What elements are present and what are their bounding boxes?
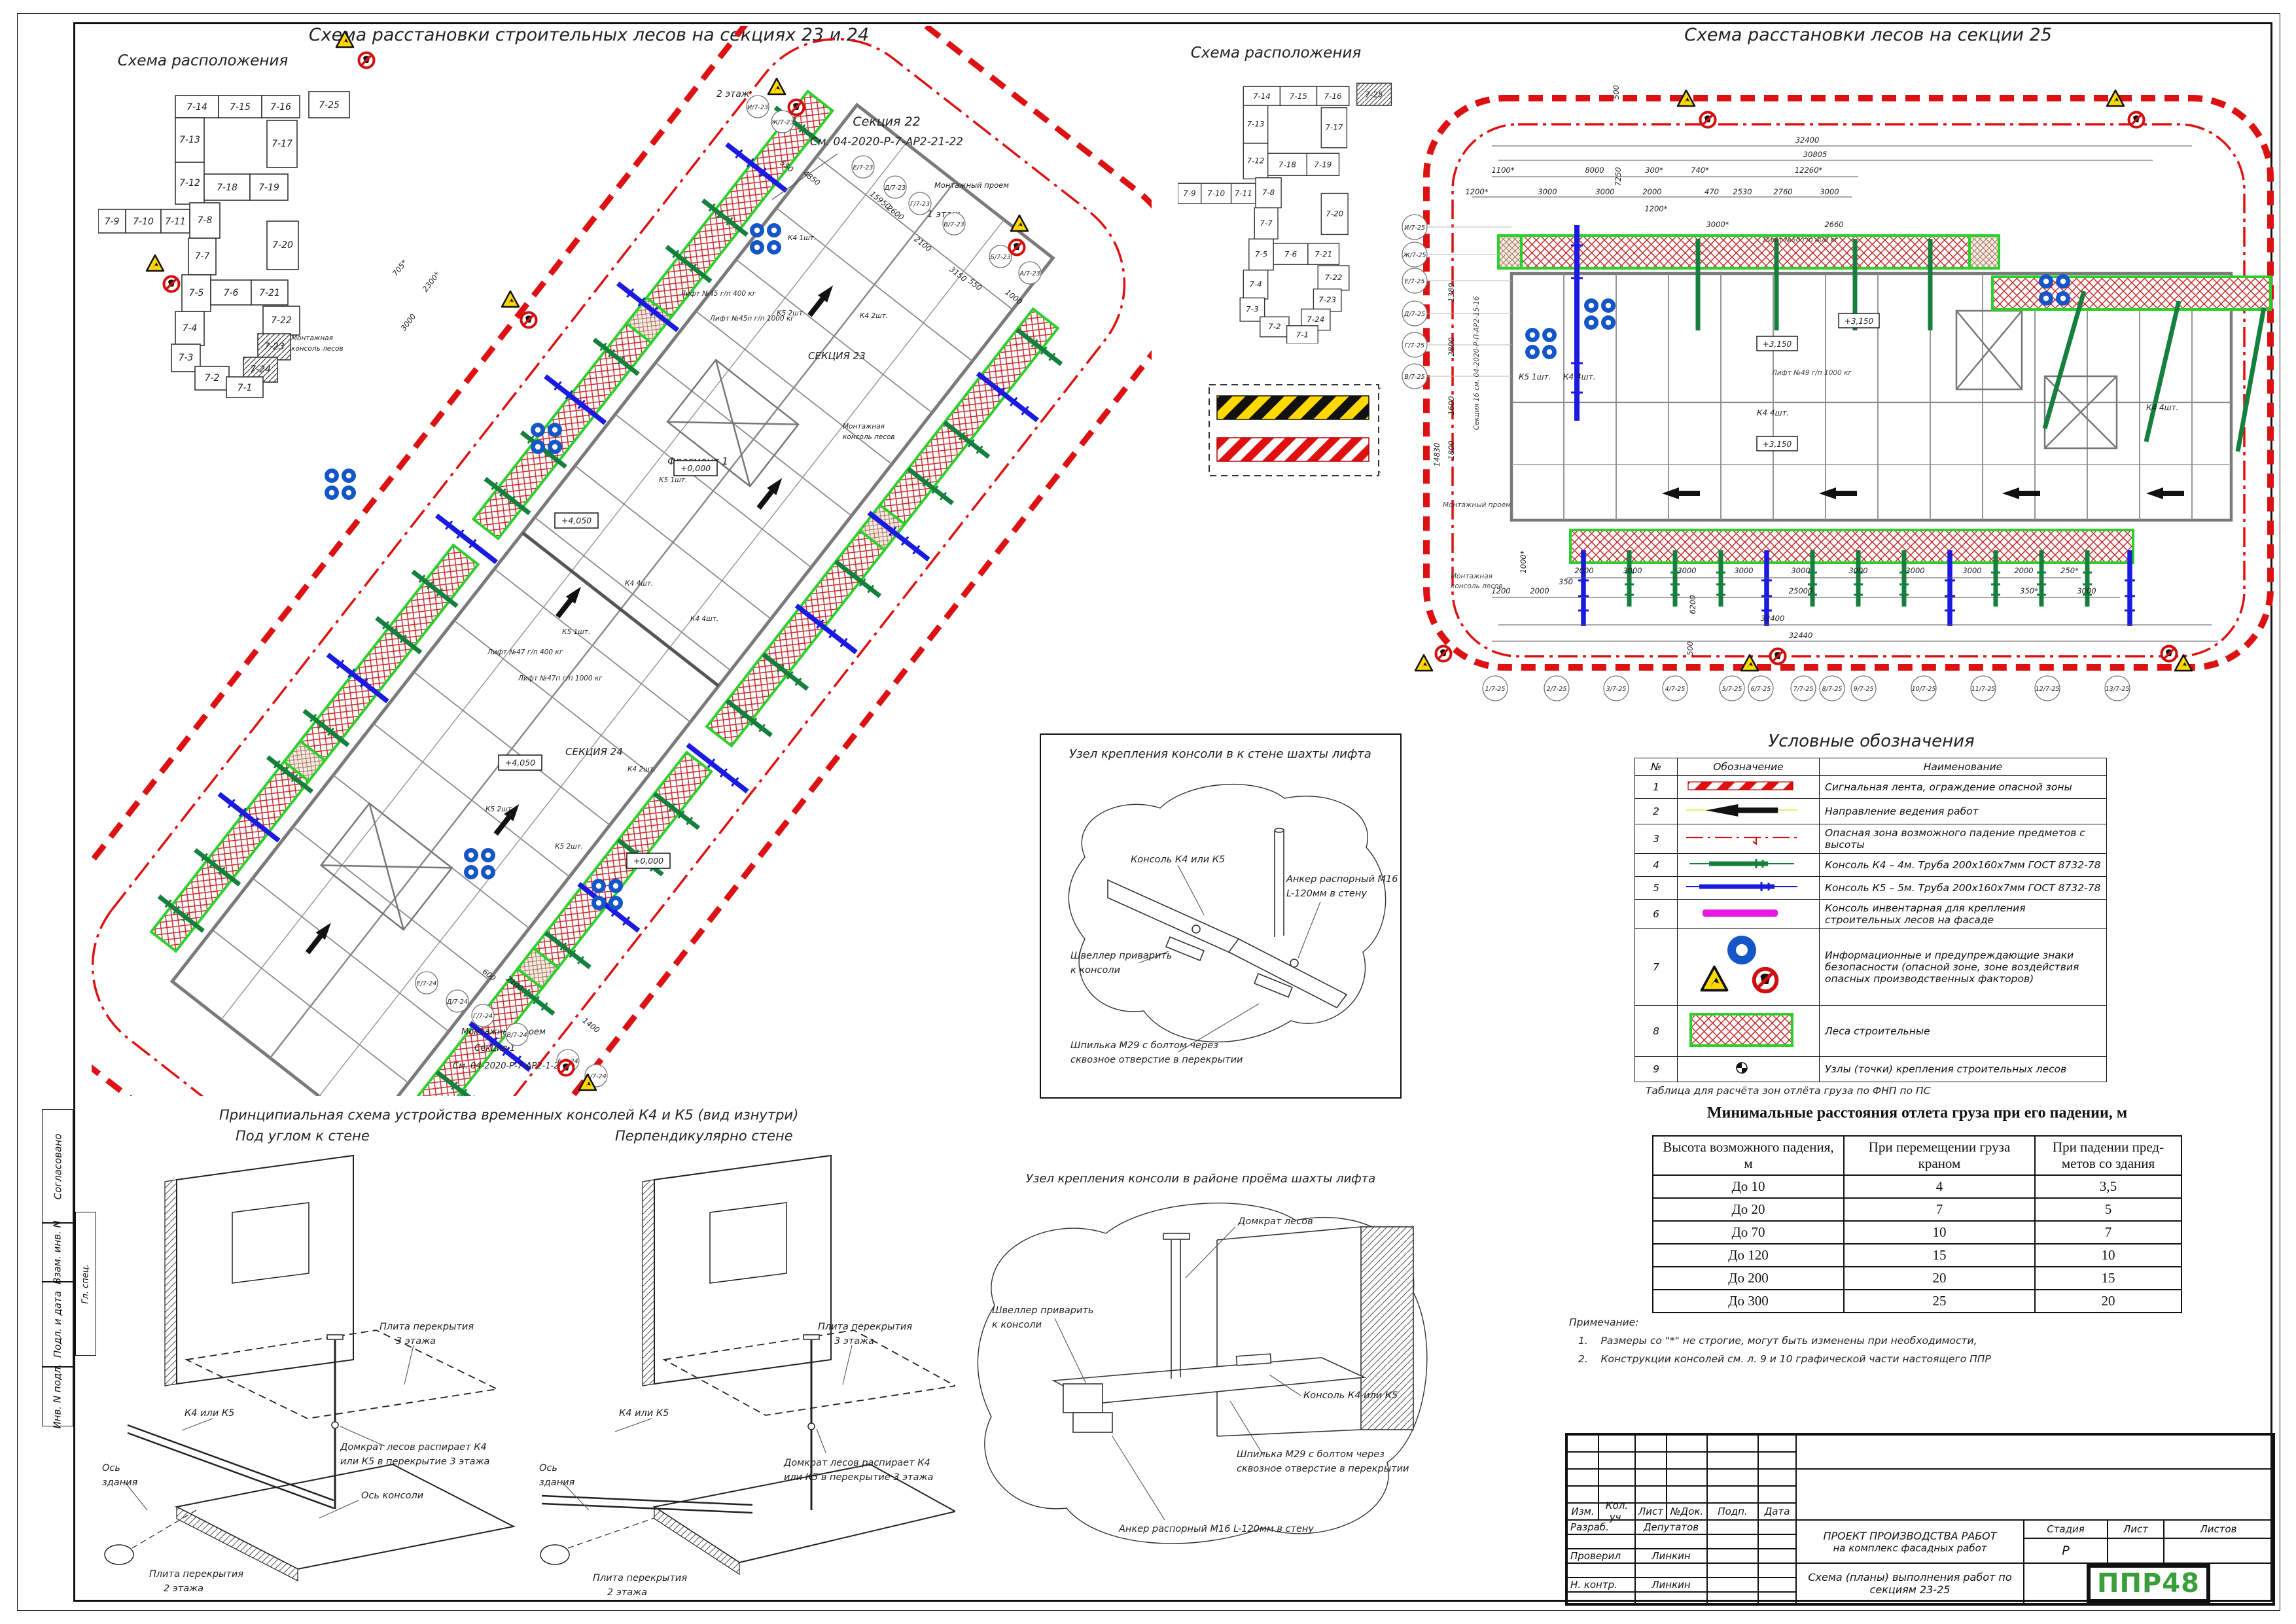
symbol-console-k5 xyxy=(1683,879,1801,894)
symbol-signal-tape xyxy=(1683,779,1801,793)
legend-row: 9 Узлы (точки) крепления строительных ле… xyxy=(1635,1057,2107,1082)
legend-row: 3 Опасная зона возможного падение предме… xyxy=(1635,824,2107,854)
svg-text:2300*: 2300* xyxy=(421,270,442,293)
svg-text:Лифт №47п г/п 1000 кг: Лифт №47п г/п 1000 кг xyxy=(518,675,603,682)
note-2: 2. Конструкции консолей см. л. 9 и 10 гр… xyxy=(1578,1353,1991,1365)
margin-cell-inv: Инв. N подл. xyxy=(42,1366,73,1426)
red-white-tape xyxy=(1217,438,1369,461)
lift50-label: Лифт №50 г/п 400 кг xyxy=(1762,236,1839,244)
legend-title: Условные обозначения xyxy=(1669,732,2074,751)
detail-lift-opening: Узел крепления консоли в районе проёма ш… xyxy=(955,1161,1446,1561)
detail-lift-wall: Узел крепления консоли в к стене шахты л… xyxy=(1039,733,1402,1099)
svg-text:здания: здания xyxy=(539,1477,575,1488)
tb-role: Разраб. xyxy=(1567,1520,1635,1534)
black-yellow-tape xyxy=(1217,396,1369,419)
svg-text:К4 2шт.: К4 2шт. xyxy=(627,766,656,773)
svg-text:или К5 в перекрытие 3 этажа: или К5 в перекрытие 3 этажа xyxy=(340,1456,489,1467)
svg-text:К4 2шт.: К4 2шт. xyxy=(860,312,888,320)
svg-text:3000: 3000 xyxy=(1623,566,1642,575)
svg-text:2 этажа: 2 этажа xyxy=(607,1587,647,1598)
svg-text:К5 2шт.: К5 2шт. xyxy=(555,843,583,851)
margin-cell-podl: Подл. и дата xyxy=(42,1281,73,1368)
svg-text:3000: 3000 xyxy=(1848,566,1867,575)
mount-console-label: Монтажная xyxy=(1451,573,1492,580)
svg-text:350: 350 xyxy=(1559,577,1573,586)
section23-label: СЕКЦИЯ 23 xyxy=(808,350,866,362)
svg-text:+3,150: +3,150 xyxy=(1763,340,1792,349)
svg-text:К5 2шт.: К5 2шт. xyxy=(486,805,514,813)
tb-col-podp: Подп. xyxy=(1707,1503,1758,1520)
svg-text:Г/7-24: Г/7-24 xyxy=(473,1013,493,1020)
grid-bubbles-bottom: 1/7-25 2/7-25 3/7-25 4/7-25 5/7-25 6/7-2… xyxy=(1483,676,2130,701)
svg-text:30805: 30805 xyxy=(1803,150,1828,159)
drop-row: До 1043,5 xyxy=(1653,1175,2181,1198)
loc-section-label: 7-23 xyxy=(1318,295,1336,304)
symbol-danger-zone xyxy=(1683,830,1801,845)
drop-table-note: Таблица для расчёта зон отлёта груза по … xyxy=(1646,1085,1931,1097)
svg-text:Монтажная: Монтажная xyxy=(291,334,333,342)
svg-text:Плита перекрытия: Плита перекрытия xyxy=(380,1322,474,1332)
svg-text:Плита перекрытия: Плита перекрытия xyxy=(818,1322,912,1332)
callout-sec22-doc: См. 04-2020-Р-7-АР2-21-22 xyxy=(810,135,963,149)
svg-text:25000: 25000 xyxy=(1789,586,1813,595)
svg-text:12260*: 12260* xyxy=(1795,166,1823,175)
legend-row: 4 Консоль К4 – 4м. Труба 200х160х7мм ГОС… xyxy=(1635,854,2107,877)
loc-section-label: 7-10 xyxy=(1207,189,1225,198)
legend-col-name: Наименование xyxy=(1820,758,2107,776)
svg-text:Б/7-23: Б/7-23 xyxy=(990,254,1010,261)
drop-row: До 3002520 xyxy=(1653,1290,2181,1313)
loc-section-label: 7-17 xyxy=(1325,123,1343,132)
svg-text:3000: 3000 xyxy=(1962,566,1981,575)
drawing-sheet: Согласовано Взам. инв. N Подл. и дата Ин… xyxy=(0,0,2296,1624)
svg-text:2000: 2000 xyxy=(1530,586,1549,595)
tb-col-data: Дата xyxy=(1758,1503,1796,1520)
principal-sub-right: Перпендикулярно стене xyxy=(615,1128,793,1144)
principal-under-angle: Плита перекрытия3 этажа К4 или К5 Осьзда… xyxy=(79,1144,523,1602)
svg-text:здания: здания xyxy=(102,1477,138,1488)
drop-row: До 2075 xyxy=(1653,1198,2181,1221)
svg-text:Г/7-25: Г/7-25 xyxy=(1405,342,1424,349)
svg-text:10/7-25: 10/7-25 xyxy=(1912,686,1936,693)
svg-text:Консоль К4 или К5: Консоль К4 или К5 xyxy=(1131,855,1225,865)
note-1: 1. Размеры со "*" не строгие, могут быть… xyxy=(1578,1335,1977,1347)
loc-section-label: 7-7 xyxy=(1260,219,1273,228)
loc-section-label: 7-9 xyxy=(1183,189,1195,198)
svg-text:1380: 1380 xyxy=(1447,283,1456,302)
svg-text:3000: 3000 xyxy=(1538,187,1557,196)
svg-text:или К5 в перекрытие 3 этажа: или К5 в перекрытие 3 этажа xyxy=(784,1472,933,1483)
drop-row: До 2002015 xyxy=(1653,1267,2181,1290)
svg-text:2 этажа: 2 этажа xyxy=(164,1583,203,1594)
drop-table-title: Минимальные расстояния отлета груза при … xyxy=(1652,1104,2182,1122)
svg-text:12/7-25: 12/7-25 xyxy=(2036,686,2060,693)
svg-text:3000: 3000 xyxy=(1820,187,1839,196)
principal-title: Принципиальная схема устройства временны… xyxy=(219,1107,798,1123)
svg-text:3000*: 3000* xyxy=(1706,220,1729,229)
tb-doc2: секциям 23-25 xyxy=(1870,1583,1951,1596)
svg-text:470: 470 xyxy=(1704,187,1719,196)
tb-col-ndok: №Док. xyxy=(1667,1503,1707,1520)
svg-text:Ось: Ось xyxy=(539,1463,557,1474)
loc-section-label: 7-24 xyxy=(1307,315,1324,324)
margin-label: Согласовано xyxy=(52,1133,63,1199)
tb-name: Депутатов xyxy=(1635,1520,1707,1534)
svg-text:3000: 3000 xyxy=(2077,586,2096,595)
svg-text:1000*: 1000* xyxy=(1519,550,1528,573)
svg-text:В/7-25: В/7-25 xyxy=(1404,374,1424,381)
dimension-texts-top: 32400 30805 1100* 8000 300* 740* 12260* … xyxy=(1465,85,1843,229)
svg-text:Д/7-24: Д/7-24 xyxy=(446,998,468,1006)
svg-text:1600: 1600 xyxy=(1447,396,1456,415)
svg-text:к консоли: к консоли xyxy=(1070,965,1120,976)
svg-text:3 этажа: 3 этажа xyxy=(396,1336,436,1347)
tb-col-list: Лист xyxy=(1635,1503,1667,1520)
tb-stage-label: Стадия xyxy=(2024,1520,2108,1538)
svg-text:5/7-25: 5/7-25 xyxy=(1722,686,1742,693)
svg-text:К4 1шт.: К4 1шт. xyxy=(788,234,816,242)
svg-text:Д/7-25: Д/7-25 xyxy=(1404,311,1425,318)
drop-header: При перемещении груза краном xyxy=(1844,1136,2035,1175)
opening-label: Монтажный проем xyxy=(1443,501,1511,509)
svg-text:14830: 14830 xyxy=(1432,443,1441,467)
plan-section-25: И/7-25 Ж/7-25 Е/7-25 Д/7-25 Г/7-25 В/7-2… xyxy=(1400,36,2290,716)
loc-section-label: 7-22 xyxy=(1325,273,1343,282)
svg-text:6/7-25: 6/7-25 xyxy=(1751,686,1771,693)
svg-text:250*: 250* xyxy=(2060,566,2079,575)
svg-text:2660: 2660 xyxy=(1824,220,1843,229)
drop-header: Высота возможного падения, м xyxy=(1653,1136,1844,1175)
symbol-direction-arrow xyxy=(1683,802,1801,819)
svg-text:3000: 3000 xyxy=(1595,187,1614,196)
svg-text:Анкер распорный М16: Анкер распорный М16 xyxy=(1286,874,1398,885)
detail2-title: Узел крепления консоли в районе проёма ш… xyxy=(1026,1172,1375,1186)
tb-logo-cell: ППР48 xyxy=(2024,1563,2273,1604)
mount-console-label: консоль лесов xyxy=(1451,582,1503,590)
svg-text:+3,150: +3,150 xyxy=(1763,440,1792,449)
loc-section-label: 7-13 xyxy=(1247,120,1265,129)
tb-doc1: Схема (планы) выполнения работ по xyxy=(1808,1571,2011,1583)
svg-text:сквозное отверстие в перекрыти: сквозное отверстие в перекрытии xyxy=(1070,1055,1243,1065)
svg-text:+3,150: +3,150 xyxy=(1845,317,1874,326)
margin-cell-vzam: Взам. инв. N xyxy=(42,1222,73,1282)
svg-text:Плита перекрытия: Плита перекрытия xyxy=(593,1573,687,1583)
svg-text:И/7-23: И/7-23 xyxy=(747,104,768,111)
svg-text:Швеллер приварить: Швеллер приварить xyxy=(1070,951,1172,961)
svg-text:И/7-25: И/7-25 xyxy=(1404,224,1425,232)
svg-text:8000: 8000 xyxy=(1585,166,1604,175)
symbol-fixing-node xyxy=(1683,1059,1801,1076)
callout-sec22: Секция 22 xyxy=(853,115,920,129)
detail1-title: Узел крепления консоли в к стене шахты л… xyxy=(1069,747,1371,761)
svg-text:+0,000: +0,000 xyxy=(633,856,663,866)
note-num: 1. xyxy=(1578,1335,1588,1347)
tb-sheet-label: Лист xyxy=(2108,1520,2164,1538)
loc-section-label: 7-1 xyxy=(1296,330,1309,340)
legend-row: 7 Информационные и предупреждающие знаки… xyxy=(1635,929,2107,1006)
svg-text:Г/7-23: Г/7-23 xyxy=(910,201,930,208)
svg-text:1200*: 1200* xyxy=(1644,204,1667,213)
svg-text:2760: 2760 xyxy=(1773,187,1792,196)
svg-text:Е/7-23: Е/7-23 xyxy=(853,164,874,171)
svg-text:4/7-25: 4/7-25 xyxy=(1665,686,1686,693)
svg-text:К5 1шт.: К5 1шт. xyxy=(562,628,590,636)
svg-text:консоль лесов: консоль лесов xyxy=(291,345,344,353)
tb-stage-value: Р xyxy=(2024,1538,2108,1563)
tb-sheets-label: Листов xyxy=(2164,1520,2273,1538)
opening-label: Монтажный проем xyxy=(934,181,1009,190)
svg-text:32400: 32400 xyxy=(1795,135,1820,145)
plan-sections-23-24: СЕКЦИЯ 23 СЕКЦИЯ 24 Секция 22 См. 04-202… xyxy=(92,26,1152,1096)
svg-text:Шпилька М29 с болтом через: Шпилька М29 с болтом через xyxy=(1237,1449,1385,1460)
loc-section-label: 7-12 xyxy=(1247,156,1265,166)
svg-text:Плита перекрытия: Плита перекрытия xyxy=(149,1569,243,1580)
svg-text:2000: 2000 xyxy=(1574,566,1593,575)
svg-text:сквозное отверстие в перекрыти: сквозное отверстие в перекрытии xyxy=(1237,1464,1409,1474)
loc-section-label: 7-14 xyxy=(1253,92,1271,101)
symbol-safety-signs xyxy=(1683,932,1801,1000)
svg-text:Лифт №45 г/п 400 кг: Лифт №45 г/п 400 кг xyxy=(680,290,756,298)
svg-text:Е/7-25: Е/7-25 xyxy=(1405,278,1425,285)
svg-text:Ж/7-23: Ж/7-23 xyxy=(771,119,794,126)
tape-callout-detail xyxy=(1207,383,1381,478)
svg-text:Консоль К4 или К5: Консоль К4 или К5 xyxy=(1303,1390,1398,1401)
svg-text:1200*: 1200* xyxy=(1465,187,1488,196)
svg-text:7250: 7250 xyxy=(1614,167,1623,186)
k4-count: К4 4шт. xyxy=(2146,403,2178,412)
tb-role: Н. контр. xyxy=(1567,1578,1635,1592)
svg-text:+0,000: +0,000 xyxy=(680,463,711,473)
svg-text:Д/7-23: Д/7-23 xyxy=(884,185,906,192)
legend-table: № Обозначение Наименование 1 Сигнальная … xyxy=(1634,758,2107,1082)
svg-text:Домкрат лесов распирает К4: Домкрат лесов распирает К4 xyxy=(340,1442,487,1453)
svg-text:Лифт №47 г/п 400 кг: Лифт №47 г/п 400 кг xyxy=(487,648,563,656)
svg-text:500: 500 xyxy=(1686,641,1695,656)
tb-project-cell: ПРОЕКТ ПРОИЗВОДСТВА РАБОТ на комплекс фа… xyxy=(1796,1520,2024,1563)
svg-text:9/7-25: 9/7-25 xyxy=(1854,686,1874,693)
drop-row: До 1201510 xyxy=(1653,1244,2181,1267)
loc-section-label: 7-2 xyxy=(1268,322,1280,331)
margin-label: Взам. инв. N xyxy=(52,1220,63,1284)
svg-text:3/7-25: 3/7-25 xyxy=(1606,686,1627,693)
loc-section-label: 7-3 xyxy=(1246,305,1258,314)
svg-text:Е/7-24: Е/7-24 xyxy=(417,980,437,987)
drop-header: При падении пред-метов со здания xyxy=(2035,1136,2181,1175)
svg-text:К4 4шт.: К4 4шт. xyxy=(690,615,718,623)
loc-section-label: 7-8 xyxy=(1262,188,1275,197)
legend-row: 8 Леса строительные xyxy=(1635,1006,2107,1057)
symbol-inventory-console xyxy=(1683,906,1801,920)
legend-row: 2 Направление ведения работ xyxy=(1635,799,2107,824)
svg-text:2000: 2000 xyxy=(1642,187,1661,196)
svg-text:705*: 705* xyxy=(391,258,409,278)
svg-text:К5 1шт.: К5 1шт. xyxy=(659,476,687,484)
notes-title: Примечание: xyxy=(1569,1316,1638,1328)
svg-text:32440: 32440 xyxy=(1789,631,1813,640)
svg-text:1/7-25: 1/7-25 xyxy=(1485,686,1506,693)
svg-text:1800: 1800 xyxy=(1447,440,1456,459)
svg-text:Ось: Ось xyxy=(102,1463,120,1474)
svg-text:3000: 3000 xyxy=(1734,566,1753,575)
svg-text:В/7-23: В/7-23 xyxy=(944,221,964,228)
svg-text:8/7-25: 8/7-25 xyxy=(1822,686,1843,693)
legend-row: 6 Консоль инвентарная для крепления стро… xyxy=(1635,900,2107,929)
svg-text:Ж/7-25: Ж/7-25 xyxy=(1403,252,1426,259)
margin-cell-soglasovano: Согласовано xyxy=(42,1109,73,1224)
svg-text:А/7-23: А/7-23 xyxy=(1019,270,1040,277)
legend-row: 1 Сигнальная лента, ограждение опасной з… xyxy=(1635,776,2107,799)
symbol-scaffolding xyxy=(1683,1010,1801,1050)
legend-row: 5 Консоль К5 – 5м. Труба 200х160х7мм ГОС… xyxy=(1635,877,2107,900)
loc-right-title: Схема расположения xyxy=(1171,44,1381,62)
tb-project2: на комплекс фасадных работ xyxy=(1833,1542,1987,1554)
principal-sub-left: Под углом к стене xyxy=(236,1128,370,1144)
svg-text:2800: 2800 xyxy=(1447,337,1456,356)
loc-section-label: 7-11 xyxy=(1235,189,1252,198)
svg-text:Ось консоли: Ось консоли xyxy=(361,1491,423,1501)
lift49-label: Лифт №49 г/п 1000 кг xyxy=(1771,369,1852,377)
callout-sec1-doc: См. 04-2020-Р-7-АР2-1-2 xyxy=(453,1061,559,1071)
tb-project1: ПРОЕКТ ПРОИЗВОДСТВА РАБОТ xyxy=(1823,1530,1996,1542)
loc-section-label: 7-20 xyxy=(1326,209,1343,218)
svg-text:Анкер распорный М16 L-120мм в: Анкер распорный М16 L-120мм в стену xyxy=(1118,1524,1314,1534)
symbol-console-k4 xyxy=(1683,856,1801,871)
loc-section-label: 7-21 xyxy=(1315,249,1332,258)
tb-name: Линкин xyxy=(1635,1549,1707,1563)
svg-text:2530: 2530 xyxy=(1733,187,1752,196)
svg-text:1100*: 1100* xyxy=(1491,166,1514,175)
tb-doc-cell: Схема (планы) выполнения работ по секция… xyxy=(1796,1563,2024,1604)
k4-count: К4 4шт. xyxy=(1563,372,1595,381)
svg-text:Лифт №45п г/п 1000 кг: Лифт №45п г/п 1000 кг xyxy=(709,315,794,323)
loc-section-label: 7-6 xyxy=(1284,249,1298,258)
loc-section-label: 7-16 xyxy=(1324,92,1342,101)
svg-text:Домкрат лесов: Домкрат лесов xyxy=(1237,1216,1313,1227)
margin-label: Подл. и дата xyxy=(52,1291,63,1358)
svg-text:3000: 3000 xyxy=(1905,566,1924,575)
svg-text:Швеллер приварить: Швеллер приварить xyxy=(992,1305,1093,1316)
svg-text:+4,050: +4,050 xyxy=(505,758,535,768)
tb-col-izm: Изм. xyxy=(1567,1503,1598,1520)
svg-text:консоль лесов: консоль лесов xyxy=(843,433,895,441)
svg-text:Домкрат лесов распирает К4: Домкрат лесов распирает К4 xyxy=(783,1458,930,1468)
title-block: Изм. Кол. уч. Лист №Док. Подп. Дата Разр… xyxy=(1565,1433,2275,1606)
svg-text:11/7-25: 11/7-25 xyxy=(1971,686,1996,693)
grid-bubbles-left: И/7-25 Ж/7-25 Е/7-25 Д/7-25 Г/7-25 В/7-2… xyxy=(1402,215,1511,389)
tb-col-koluch: Кол. уч. xyxy=(1598,1503,1635,1520)
tb-name: Линкин xyxy=(1635,1578,1707,1592)
loc-section-label: 7-4 xyxy=(1249,279,1262,289)
legend-col-symbol: Обозначение xyxy=(1678,758,1820,776)
section16-ref: Секция 16 см. 04-2020-Р-П-АР2-15-16 xyxy=(1473,296,1481,430)
ppr48-logo: ППР48 xyxy=(2087,1564,2210,1603)
svg-text:300*: 300* xyxy=(1645,166,1663,175)
svg-text:32400: 32400 xyxy=(1761,614,1785,623)
note-text: Размеры со "*" не строгие, могут быть из… xyxy=(1601,1335,1977,1347)
drop-row: До 70107 xyxy=(1653,1221,2181,1244)
wall-and-beam xyxy=(1053,1227,1413,1436)
loc-section-label: 7-19 xyxy=(1314,160,1332,169)
svg-text:+4,050: +4,050 xyxy=(561,516,592,525)
svg-text:3000: 3000 xyxy=(1791,566,1810,575)
svg-text:2/7-25: 2/7-25 xyxy=(1547,686,1567,693)
svg-text:3000: 3000 xyxy=(1677,566,1696,575)
callout-sec1: Секция 1 xyxy=(474,1044,515,1053)
svg-text:L-120мм в стену: L-120мм в стену xyxy=(1286,889,1367,899)
location-scheme-right: 7-14 7-15 7-16 7-25 7-13 7-17 7-12 7-18 … xyxy=(1178,65,1400,344)
drop-table: Высота возможного падения, м При перемещ… xyxy=(1652,1135,2182,1313)
svg-text:К4 или К5: К4 или К5 xyxy=(619,1408,669,1419)
wall-and-slabs xyxy=(643,1156,955,1574)
svg-text:2000: 2000 xyxy=(2014,566,2033,575)
tb-role: Проверил xyxy=(1567,1549,1635,1563)
svg-text:3000: 3000 xyxy=(398,312,417,333)
loc-section-label: 7-5 xyxy=(1255,249,1267,258)
building-walls xyxy=(172,105,1053,1096)
svg-text:3 этажа: 3 этажа xyxy=(834,1336,874,1347)
svg-text:К4 или К5: К4 или К5 xyxy=(185,1408,234,1419)
note-num: 2. xyxy=(1578,1353,1588,1365)
principal-perpendicular: Плита перекрытия3 этажа К4 или К5 Осьзда… xyxy=(523,1144,955,1602)
svg-text:К4 4шт.: К4 4шт. xyxy=(625,580,653,588)
svg-text:740*: 740* xyxy=(1691,166,1709,175)
svg-text:к консоли: к консоли xyxy=(992,1320,1042,1330)
k4-count: К4 4шт. xyxy=(1757,408,1789,417)
section24-label: СЕКЦИЯ 24 xyxy=(565,746,623,758)
svg-text:В/7-24: В/7-24 xyxy=(506,1032,527,1039)
svg-text:13/7-25: 13/7-25 xyxy=(2106,686,2130,693)
svg-text:500: 500 xyxy=(1612,85,1621,99)
svg-text:Монтажная: Монтажная xyxy=(843,423,885,431)
floor2-label: 2 этаж xyxy=(716,89,750,99)
legend-col-num: № xyxy=(1635,758,1678,776)
svg-text:1400: 1400 xyxy=(581,1015,602,1034)
wall-and-slabs xyxy=(165,1156,514,1581)
svg-text:350*: 350* xyxy=(2020,586,2038,595)
note-text: Конструкции консолей см. л. 9 и 10 графи… xyxy=(1601,1353,1991,1365)
margin-label: Инв. N подл. xyxy=(52,1364,63,1428)
k5-count: К5 1шт. xyxy=(1519,372,1551,381)
callout-opening: Монтажный проем xyxy=(461,1027,546,1037)
loc-section-label: 7-25 xyxy=(1366,90,1383,99)
svg-text:Шпилька М29 с болтом через: Шпилька М29 с болтом через xyxy=(1070,1040,1218,1051)
svg-text:6200: 6200 xyxy=(1688,595,1697,614)
loc-section-label: 7-18 xyxy=(1279,160,1296,169)
svg-text:7/7-25: 7/7-25 xyxy=(1793,686,1814,693)
loc-section-label: 7-15 xyxy=(1290,92,1307,101)
